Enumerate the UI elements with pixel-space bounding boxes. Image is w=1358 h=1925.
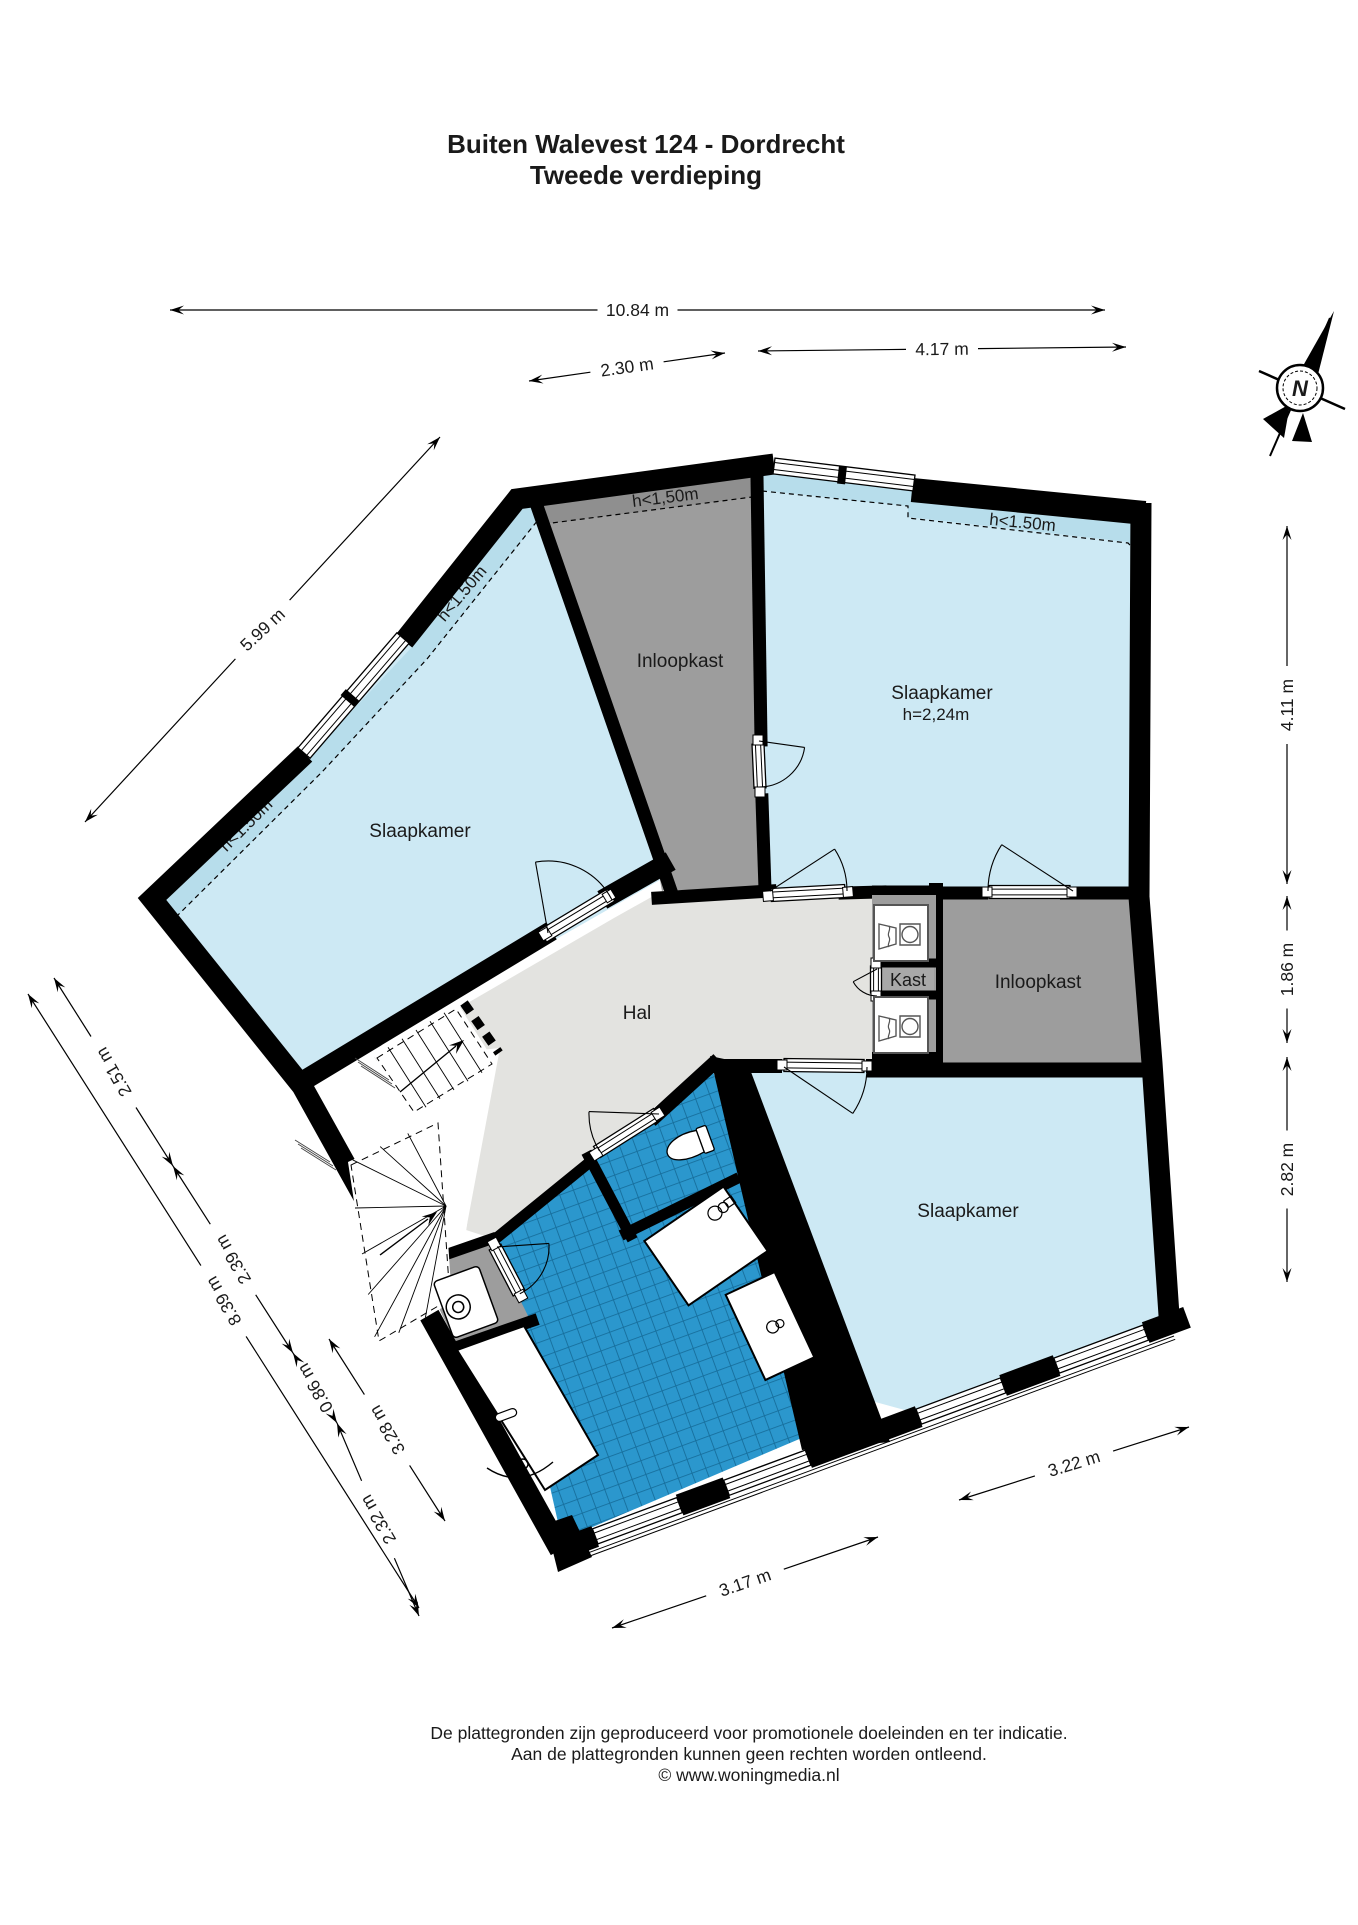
svg-text:Slaapkamer: Slaapkamer [369, 821, 471, 842]
svg-text:1.86 m: 1.86 m [1277, 943, 1297, 997]
svg-text:4.17 m: 4.17 m [915, 339, 969, 360]
svg-text:2.82 m: 2.82 m [1277, 1143, 1297, 1197]
svg-text:4.11 m: 4.11 m [1277, 679, 1297, 731]
svg-text:Inloopkast: Inloopkast [995, 972, 1082, 993]
svg-text:Tweede verdieping: Tweede verdieping [530, 160, 762, 190]
svg-text:N: N [1292, 376, 1309, 401]
svg-text:Slaapkamer: Slaapkamer [917, 1201, 1019, 1222]
svg-text:Buiten Walevest 124 - Dordrech: Buiten Walevest 124 - Dordrecht [447, 129, 845, 159]
svg-text:De plattegronden zijn geproduc: De plattegronden zijn geproduceerd voor … [430, 1723, 1067, 1743]
svg-text:Kast: Kast [890, 970, 926, 990]
svg-text:Inloopkast: Inloopkast [637, 651, 724, 672]
svg-text:Aan de plattegronden kunnen ge: Aan de plattegronden kunnen geen rechten… [511, 1744, 987, 1764]
svg-text:h=2,24m: h=2,24m [903, 705, 970, 724]
svg-text:Hal: Hal [623, 1003, 652, 1024]
svg-text:10.84 m: 10.84 m [606, 300, 669, 320]
svg-text:Slaapkamer: Slaapkamer [891, 683, 993, 704]
svg-text:© www.woningmedia.nl: © www.woningmedia.nl [658, 1765, 839, 1785]
